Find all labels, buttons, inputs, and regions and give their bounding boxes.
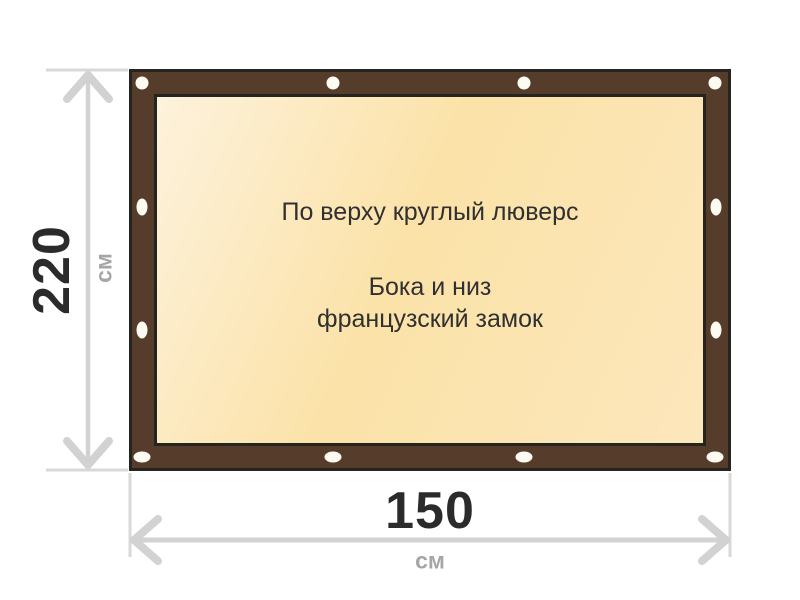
grommet-icon: [134, 452, 151, 463]
grommet-icon: [518, 77, 531, 90]
grommet-icon: [709, 77, 722, 90]
grommet-icon: [327, 77, 340, 90]
grommet-icon: [325, 452, 342, 463]
height-unit: см: [91, 253, 118, 283]
width-unit: см: [415, 548, 445, 575]
annotation-sides-bottom: Бока и низ французский замок: [129, 271, 731, 335]
right-arrowhead-icon: [702, 519, 726, 561]
tarp-canvas: [154, 94, 706, 446]
annotation-line-1: Бока и низ: [129, 271, 731, 303]
height-value: 220: [22, 225, 82, 315]
annotation-top-grommet: По верху круглый люверс: [129, 196, 731, 228]
down-arrowhead-icon: [67, 441, 109, 465]
grommet-icon: [136, 77, 149, 90]
grommet-icon: [707, 452, 724, 463]
width-value: 150: [385, 481, 475, 541]
up-arrowhead-icon: [67, 75, 109, 99]
annotation-line-2: французский замок: [129, 303, 731, 335]
left-arrowhead-icon: [134, 519, 158, 561]
grommet-icon: [516, 452, 533, 463]
tarp-spec-diagram: По верху круглый люверс Бока и низ франц…: [0, 0, 800, 600]
tarp-frame: [129, 69, 731, 471]
